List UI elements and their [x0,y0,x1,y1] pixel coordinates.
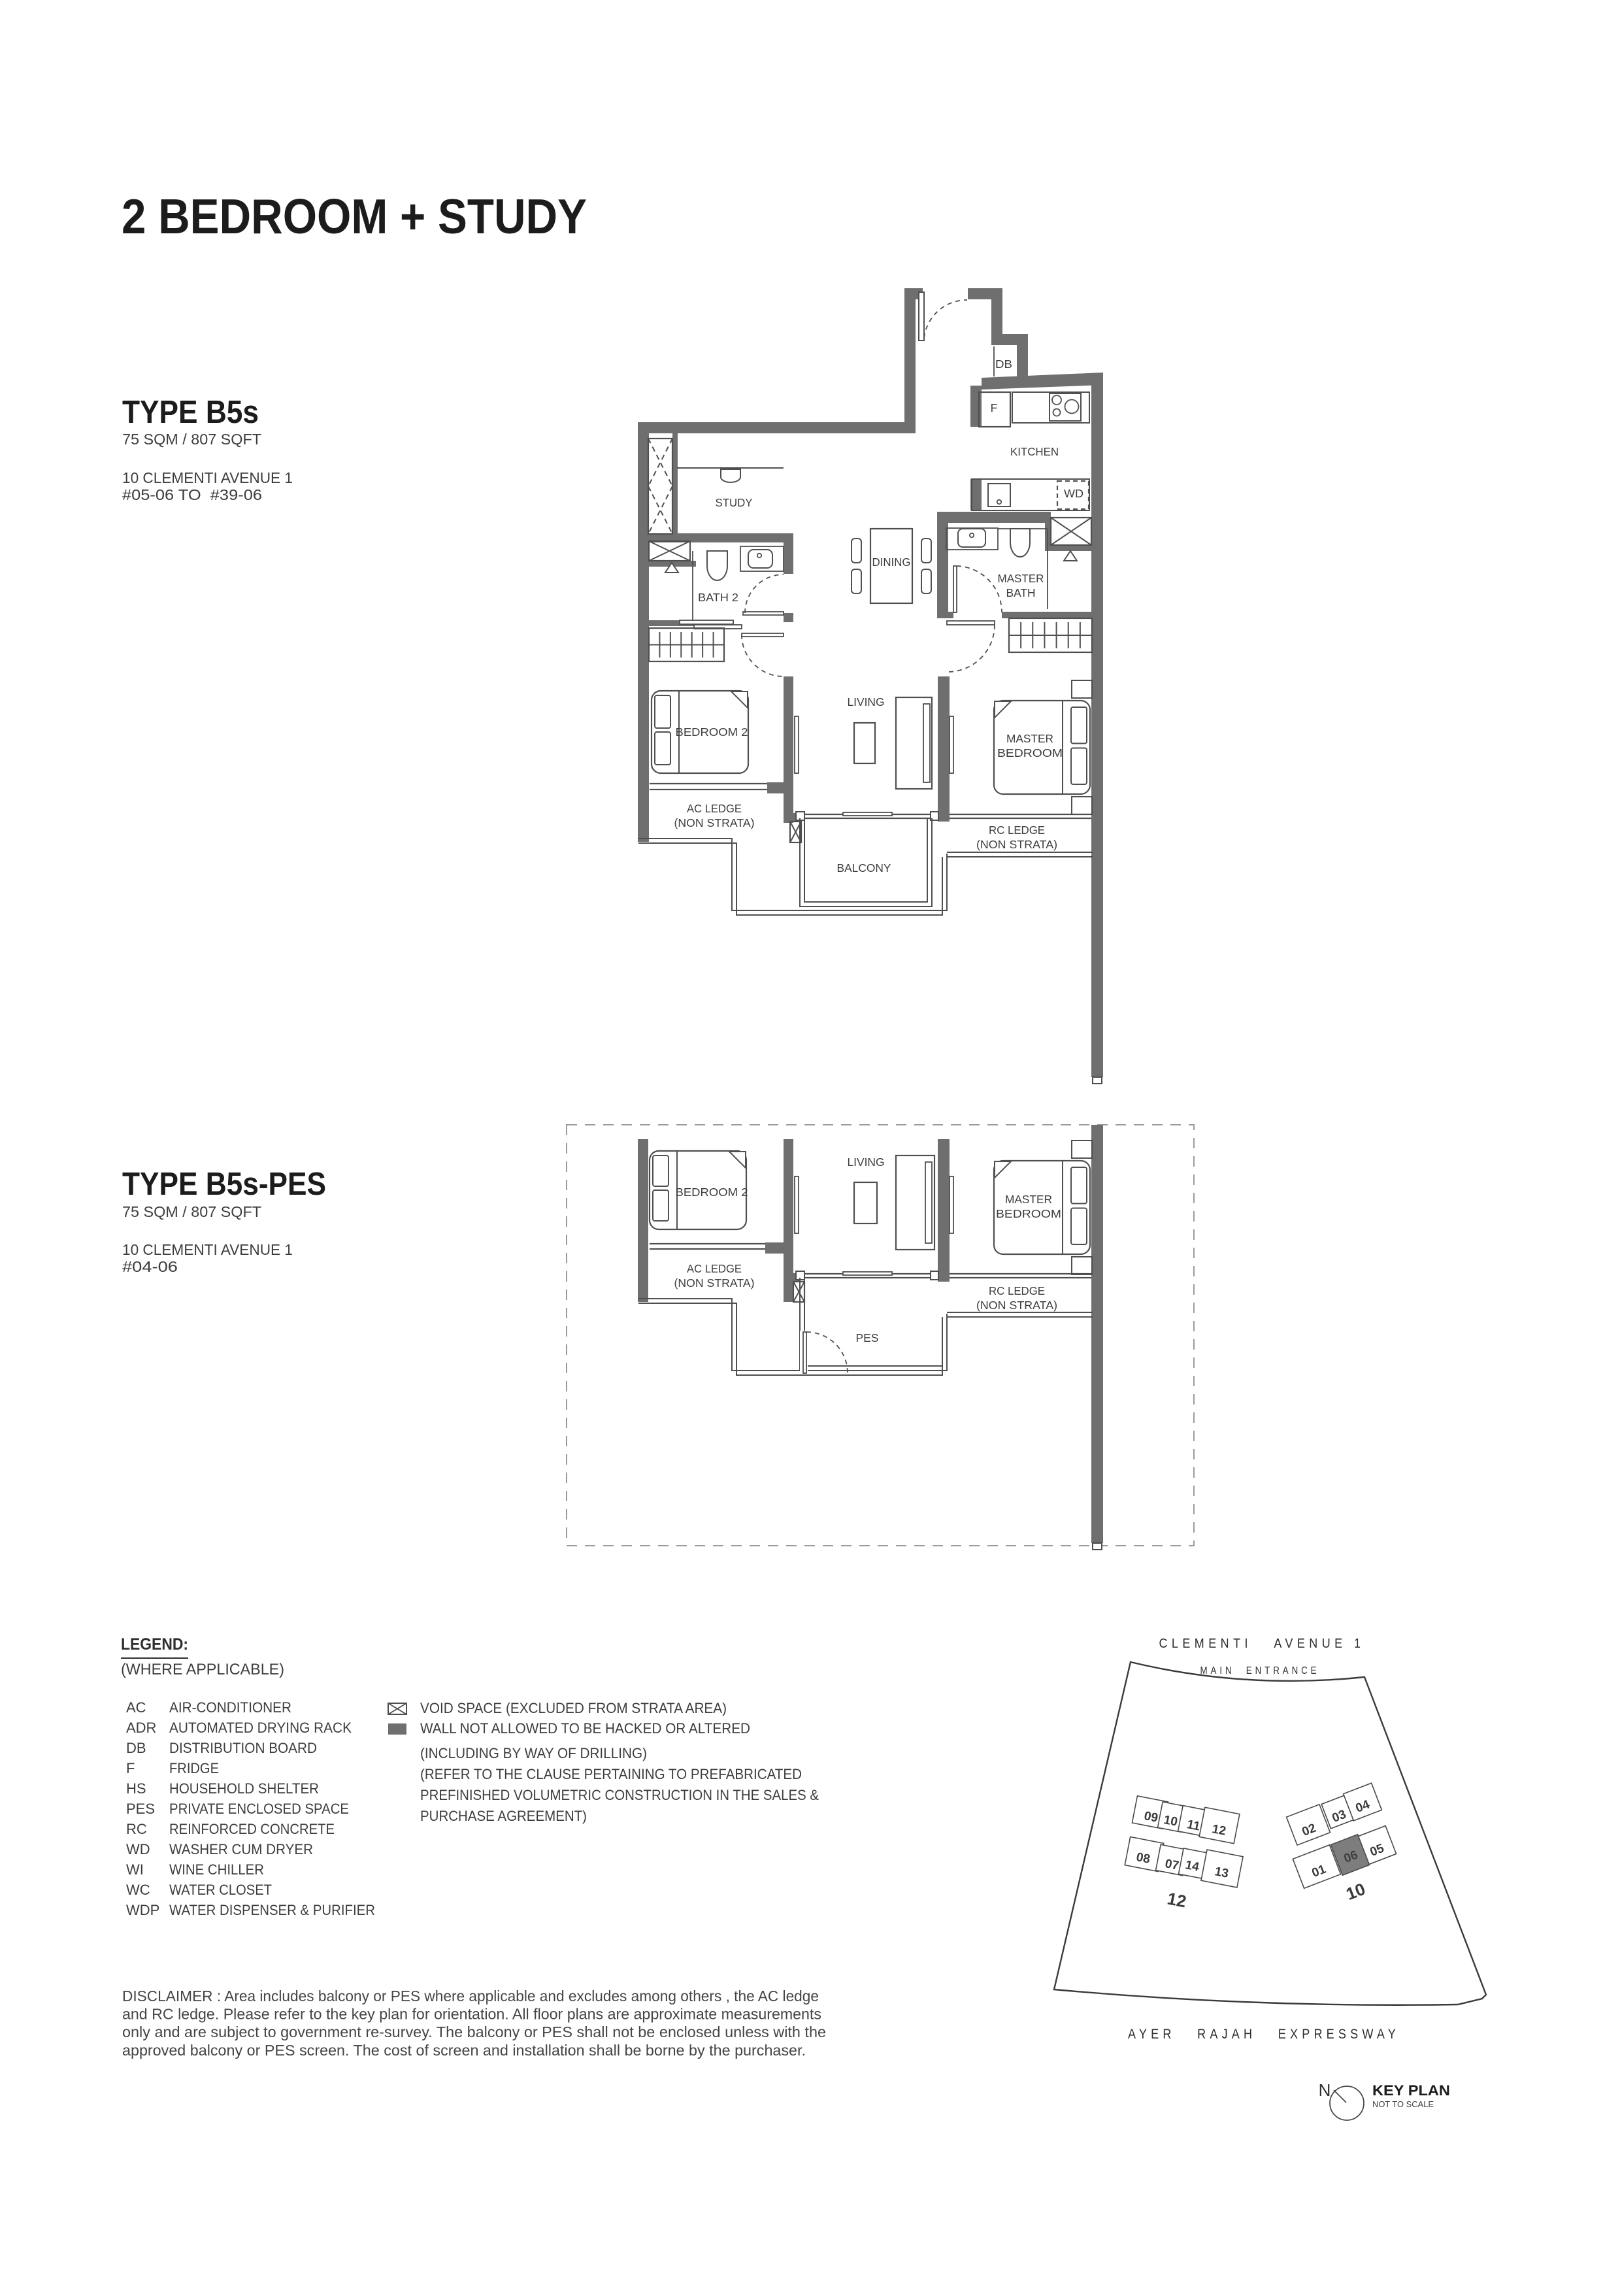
svg-text:BEDROOM: BEDROOM [996,1207,1061,1220]
svg-text:MASTER: MASTER [1005,1193,1052,1206]
svg-text:#04-06: #04-06 [122,1258,178,1275]
svg-text:MASTER: MASTER [1006,732,1053,745]
svg-text:F: F [991,401,998,414]
svg-text:(NON STRATA): (NON STRATA) [976,838,1057,851]
svg-text:WD: WD [126,1841,150,1857]
svg-text:WATER CLOSET: WATER CLOSET [169,1882,272,1898]
svg-text:HS: HS [126,1780,146,1797]
svg-text:WI: WI [126,1861,144,1878]
svg-text:07: 07 [1164,1857,1180,1873]
svg-text:DB: DB [995,358,1012,371]
svg-text:DB: DB [126,1740,146,1756]
svg-text:WALL NOT ALLOWED TO BE HACKED: WALL NOT ALLOWED TO BE HACKED OR ALTERED [420,1720,750,1737]
svg-text:VOID SPACE (EXCLUDED FROM STRA: VOID SPACE (EXCLUDED FROM STRATA AREA) [420,1700,727,1716]
svg-text:PURCHASE AGREEMENT): PURCHASE AGREEMENT) [420,1808,587,1824]
svg-text:approved balcony or PES screen: approved balcony or PES screen. The cost… [122,2042,806,2059]
svg-text:TYPE B5s-PES: TYPE B5s-PES [122,1167,326,1202]
svg-text:(WHERE APPLICABLE): (WHERE APPLICABLE) [121,1661,284,1678]
svg-text:only and are subject to govern: only and are subject to government re-su… [122,2023,826,2040]
svg-text:RC: RC [126,1821,147,1837]
svg-text:DINING: DINING [872,556,911,569]
svg-text:TYPE B5s: TYPE B5s [122,395,259,430]
svg-text:BEDROOM: BEDROOM [997,746,1063,759]
svg-text:12: 12 [1166,1888,1188,1911]
svg-text:DISTRIBUTION BOARD: DISTRIBUTION BOARD [169,1740,317,1756]
svg-text:REINFORCED CONCRETE: REINFORCED CONCRETE [169,1821,335,1837]
svg-text:09: 09 [1143,1809,1159,1825]
svg-text:AYER RAJAH EXPRESSWAY: AYER RAJAH EXPRESSWAY [1128,2027,1400,2042]
svg-text:75 SQM / 807 SQFT: 75 SQM / 807 SQFT [122,431,261,448]
svg-text:STUDY: STUDY [716,496,753,509]
svg-text:10 CLEMENTI AVENUE 1: 10 CLEMENTI AVENUE 1 [122,1241,293,1258]
svg-text:CLEMENTI AVENUE 1: CLEMENTI AVENUE 1 [1159,1637,1365,1651]
svg-text:F: F [126,1760,135,1776]
svg-text:AIR-CONDITIONER: AIR-CONDITIONER [169,1699,291,1716]
svg-text:(NON STRATA): (NON STRATA) [976,1299,1057,1312]
svg-text:PES: PES [126,1801,155,1817]
svg-text:(NON STRATA): (NON STRATA) [674,1276,755,1289]
svg-text:BEDROOM 2: BEDROOM 2 [676,725,748,739]
svg-text:WATER DISPENSER & PURIFIER: WATER DISPENSER & PURIFIER [169,1902,375,1918]
svg-text:BATH: BATH [1006,586,1036,599]
svg-text:BEDROOM 2: BEDROOM 2 [676,1186,748,1199]
svg-text:WC: WC [126,1882,150,1898]
svg-text:10: 10 [1163,1813,1179,1829]
svg-text:10 CLEMENTI AVENUE 1: 10 CLEMENTI AVENUE 1 [122,469,293,486]
svg-text:BATH 2: BATH 2 [698,591,738,604]
svg-text:LEGEND:: LEGEND: [121,1635,188,1654]
svg-text:75 SQM / 807 SQFT: 75 SQM / 807 SQFT [122,1203,261,1220]
svg-text:#05-06 TO #39-06: #05-06 TO #39-06 [122,486,262,503]
svg-text:(INCLUDING BY WAY OF DRILLING): (INCLUDING BY WAY OF DRILLING) [420,1745,647,1761]
svg-text:RC LEDGE: RC LEDGE [989,1284,1045,1297]
svg-text:DISCLAIMER : Area includes bal: DISCLAIMER : Area includes balcony or PE… [122,1988,819,2005]
svg-text:LIVING: LIVING [848,1156,885,1169]
svg-text:MASTER: MASTER [998,572,1044,585]
svg-text:AC: AC [126,1699,146,1716]
svg-text:BALCONY: BALCONY [837,861,891,874]
svg-text:FRIDGE: FRIDGE [169,1760,219,1776]
svg-text:WINE CHILLER: WINE CHILLER [169,1861,264,1878]
svg-text:RC LEDGE: RC LEDGE [989,824,1045,837]
svg-text:WD: WD [1064,487,1083,500]
svg-text:MAIN ENTRANCE: MAIN ENTRANCE [1200,1665,1320,1676]
svg-text:AC LEDGE: AC LEDGE [687,1262,742,1275]
svg-text:13: 13 [1214,1865,1230,1881]
svg-text:AUTOMATED DRYING RACK: AUTOMATED DRYING RACK [169,1720,352,1736]
svg-text:KEY PLAN: KEY PLAN [1372,2082,1450,2099]
svg-text:N: N [1319,2080,1331,2100]
svg-text:KITCHEN: KITCHEN [1010,445,1059,458]
svg-text:HOUSEHOLD SHELTER: HOUSEHOLD SHELTER [169,1780,319,1797]
svg-text:LIVING: LIVING [848,695,885,708]
svg-text:PES: PES [856,1331,879,1344]
svg-text:(REFER TO THE CLAUSE PERTAININ: (REFER TO THE CLAUSE PERTAINING TO PREFA… [420,1766,802,1782]
svg-text:12: 12 [1211,1822,1227,1838]
svg-text:08: 08 [1135,1850,1151,1867]
svg-text:WDP: WDP [126,1902,159,1918]
svg-text:AC LEDGE: AC LEDGE [687,802,742,815]
svg-text:2 BEDROOM + STUDY: 2 BEDROOM + STUDY [122,189,587,244]
svg-text:ADR: ADR [126,1720,156,1736]
svg-text:14: 14 [1184,1858,1200,1874]
svg-text:and RC ledge. Please refer to: and RC ledge. Please refer to the key pl… [122,2006,821,2023]
svg-text:NOT TO SCALE: NOT TO SCALE [1372,2099,1434,2109]
svg-text:PRIVATE ENCLOSED SPACE: PRIVATE ENCLOSED SPACE [169,1801,349,1817]
svg-text:(NON STRATA): (NON STRATA) [674,816,755,829]
svg-text:PREFINISHED VOLUMETRIC CONSTRU: PREFINISHED VOLUMETRIC CONSTRUCTION IN T… [420,1787,819,1803]
svg-text:WASHER CUM DRYER: WASHER CUM DRYER [169,1841,313,1857]
